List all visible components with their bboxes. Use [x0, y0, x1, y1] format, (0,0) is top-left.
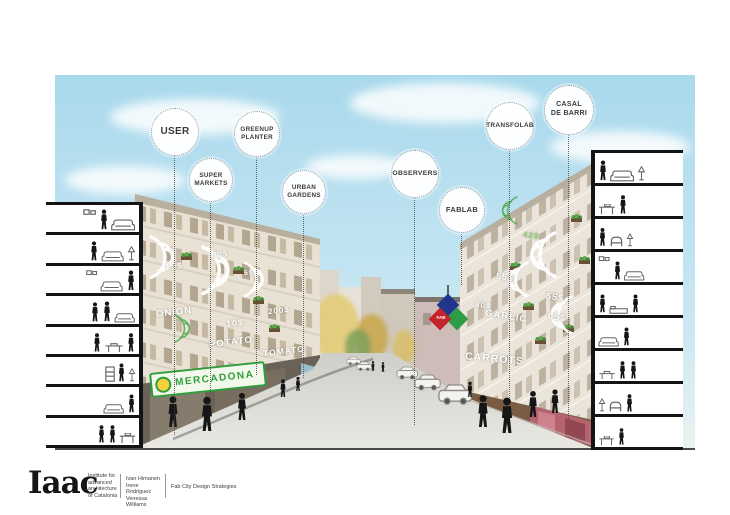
lamp-icon [599, 399, 604, 411]
person-icon [627, 394, 632, 411]
annotation-label: TRANSFOLAB [486, 122, 534, 130]
section-floor [46, 235, 139, 265]
pictures-icon [87, 271, 97, 275]
person-icon [128, 333, 133, 351]
footer-project-title: Fab City Design Strategies [171, 484, 261, 491]
section-floor [595, 219, 683, 252]
fablab-logo-label: FAB [433, 315, 449, 320]
sofa-icon [104, 404, 123, 412]
person-icon [92, 302, 97, 321]
desk-icon [599, 436, 613, 445]
person-icon [129, 394, 134, 412]
section-floor [46, 357, 139, 387]
person-icon [624, 328, 629, 346]
person-icon [620, 361, 625, 378]
supermarket-sign-label: MERCADONA [175, 369, 255, 388]
annotation-observers: OBSERVERS [391, 150, 439, 198]
section-floor [46, 296, 139, 326]
annotation-fablab: FABLAB [439, 187, 485, 233]
person-icon [619, 428, 624, 444]
desk-icon [599, 204, 615, 214]
building-section-right [591, 150, 683, 450]
leader-line-super-markets [210, 179, 211, 390]
footer-org: Institute for advanced architecture of C… [88, 473, 120, 499]
lamp-icon [639, 167, 645, 180]
price-tag: 05$ [547, 311, 566, 323]
person-icon [620, 195, 625, 213]
desk-icon [120, 433, 135, 443]
footer: Iaac Institute for advanced architecture… [0, 462, 730, 515]
pictures-icon [84, 210, 95, 214]
person-icon [615, 262, 620, 280]
person-icon [128, 271, 134, 291]
sofa-icon [102, 252, 123, 261]
leader-line-casal-de-barri [568, 109, 569, 420]
section-floor [595, 417, 683, 450]
leader-line-urban-gardens [303, 191, 304, 378]
table-icon [599, 372, 614, 380]
section-floor [46, 387, 139, 417]
bed-icon [610, 307, 627, 314]
sofa-icon [115, 313, 134, 321]
leader-line-transfolab [509, 125, 510, 398]
annotation-label: FABLAB [446, 205, 478, 214]
annotation-super-markets: SUPER MARKETS [189, 158, 233, 202]
person-icon [631, 361, 636, 378]
sofa-icon [599, 338, 618, 346]
annotation-casal-de-barri: CASAL DE BARRI [544, 85, 594, 135]
section-floor [595, 252, 683, 285]
lamp-icon [129, 369, 134, 381]
annotation-greenup-planter: GREENUP PLANTER [234, 111, 280, 157]
leader-line-observers [414, 173, 415, 425]
shelf-icon [106, 367, 114, 381]
sofa-icon [112, 220, 135, 230]
section-floor [595, 318, 683, 351]
annotation-label: CASAL DE BARRI [551, 101, 587, 119]
person-icon [110, 425, 115, 442]
price-tag: 80$ [212, 249, 229, 259]
section-floor [595, 153, 683, 186]
person-icon [101, 210, 107, 230]
section-floor [595, 351, 683, 384]
person-icon [600, 295, 605, 313]
person-icon [600, 161, 606, 181]
annotation-transfolab: TRANSFOLAB [486, 102, 534, 150]
pictures-icon [599, 257, 609, 261]
section-floor [46, 418, 139, 448]
sofa-icon [611, 171, 634, 181]
section-floor [595, 384, 683, 417]
person-icon [104, 301, 110, 321]
footer-divider [165, 474, 166, 498]
person-icon [99, 425, 104, 442]
annotation-urban-gardens: URBAN GARDENS [282, 170, 326, 214]
person-icon [633, 295, 638, 313]
person-icon [119, 364, 124, 382]
lamp-icon [129, 246, 135, 259]
leader-line-greenup-planter [256, 133, 257, 375]
annotation-label: USER [161, 126, 190, 139]
person-icon [94, 333, 99, 351]
lamp-icon [627, 234, 632, 246]
sofa-icon [101, 282, 122, 291]
table-icon [106, 344, 123, 352]
price-tag: 42$ [523, 230, 540, 241]
footer-authors: Ivan Himanen Irene Rodriguez Venessa Wil… [126, 476, 164, 509]
annotation-label: URBAN GARDENS [287, 184, 321, 200]
section-floor [595, 186, 683, 219]
price-tag: 10$ [226, 317, 245, 329]
building-section-left [46, 202, 143, 448]
person-icon [600, 228, 605, 246]
annotation-label: SUPER MARKETS [194, 172, 227, 188]
price-tag: 5$ [244, 270, 254, 278]
annotation-label: OBSERVERS [392, 170, 437, 178]
leader-line-user [174, 131, 175, 435]
footer-divider [120, 474, 121, 498]
armchair-icon [611, 237, 621, 246]
supermarket-emblem-icon [154, 375, 172, 393]
section-floor [595, 285, 683, 318]
section-floor [46, 327, 139, 357]
price-tag: 55$ [545, 291, 564, 303]
armchair-icon [610, 402, 620, 411]
annotation-user: USER [151, 108, 199, 156]
person-icon [91, 241, 96, 260]
section-floor [46, 266, 139, 296]
sofa-icon [625, 272, 644, 280]
section-floor [46, 205, 139, 235]
annotation-label: GREENUP PLANTER [240, 126, 273, 142]
